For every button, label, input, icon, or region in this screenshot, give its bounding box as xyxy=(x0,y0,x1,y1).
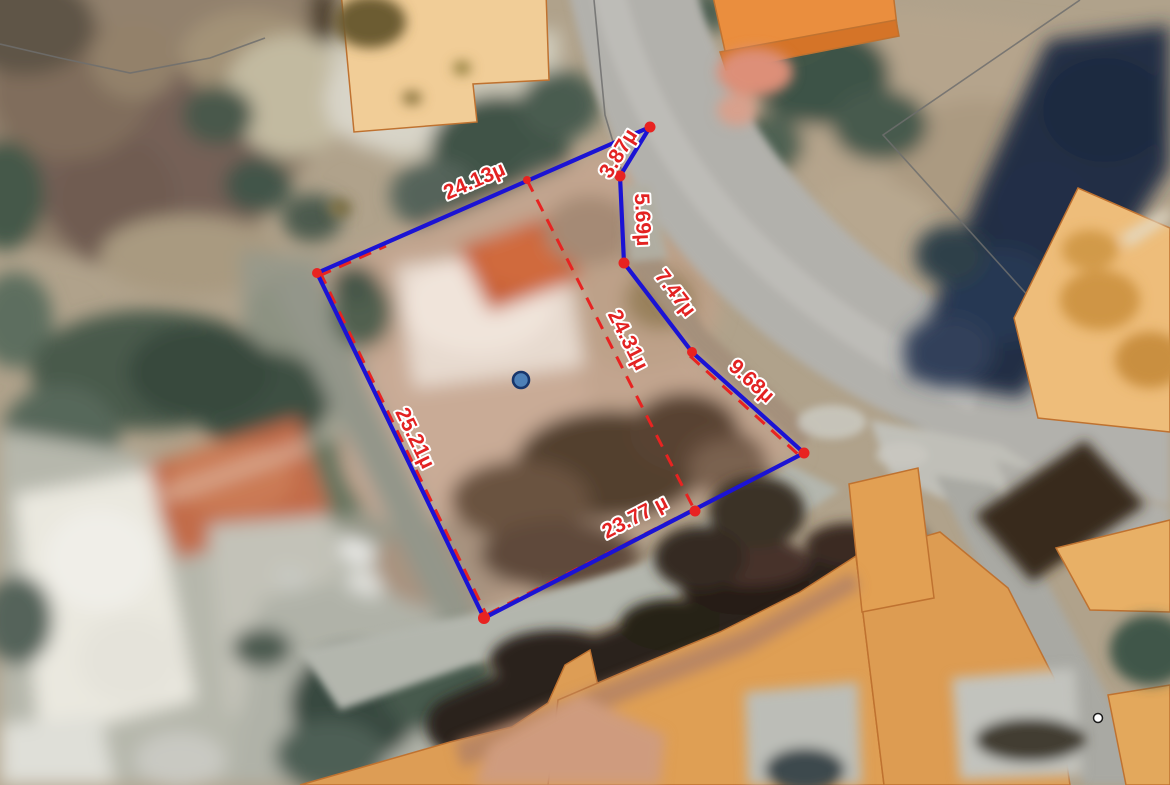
svg-text:5.69µ: 5.69µ xyxy=(630,193,655,247)
